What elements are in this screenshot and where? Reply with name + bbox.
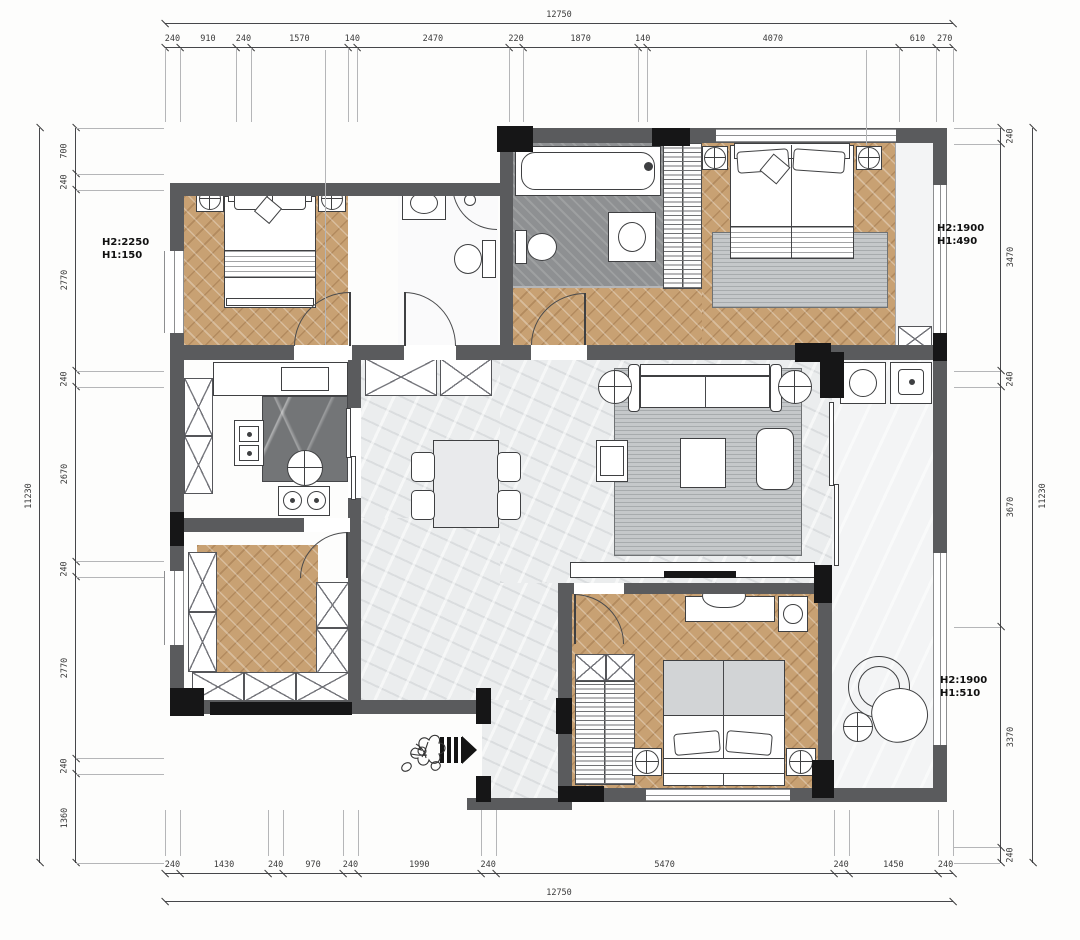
dim-chain-left-ext <box>76 774 164 775</box>
opening-bath1 <box>404 345 456 360</box>
window-label-right-bottom: H2:1900 H1:510 <box>940 674 1000 700</box>
wall-storage-right <box>348 530 361 714</box>
dim-overall-top: 12750 <box>165 6 953 24</box>
dim-overall-right-line <box>1032 128 1033 863</box>
dim-chain-left-ext <box>76 371 164 372</box>
window-label-right-top: H2:1900 H1:490 <box>937 222 997 248</box>
laundry-drain-dot <box>909 379 915 385</box>
pier-top-mid <box>652 128 690 146</box>
window-label-left-line2: H1:150 <box>102 249 162 262</box>
dim-chain-bottom-label: 240 <box>330 860 370 872</box>
pier-bed3-sw <box>558 786 604 802</box>
window-label-right-top-line1: H2:1900 <box>937 222 997 235</box>
dim-chain-bottom-ext <box>180 810 181 856</box>
dim-chain-bottom-label: 5470 <box>645 860 685 872</box>
sofa-seat-split <box>705 376 706 408</box>
bath2-toilet-tank <box>515 230 527 264</box>
window-label-right-bottom-line2: H1:510 <box>940 687 1000 700</box>
storage-cabinet-bottom-c <box>296 672 349 702</box>
dim-overall-right-label: 11230 <box>1035 128 1051 863</box>
dim-chain-bottom-label: 240 <box>821 860 861 872</box>
dim-chain-right-label: 240 <box>1003 847 1019 863</box>
storage-cabinet-bottom-b <box>244 672 296 702</box>
dim-chain-top-label: 2470 <box>413 34 453 46</box>
floor-plan-canvas: H2:2250 H1:150 H2:1900 H1:490 H2:1900 H1… <box>0 0 1080 940</box>
sideboard-b <box>440 358 492 396</box>
kitchen-tray <box>281 367 329 391</box>
bath1-toilet-bowl <box>454 244 482 274</box>
kitchen-sliding-door-b <box>351 456 356 500</box>
storage-cabinet-left-a <box>188 552 217 612</box>
window-label-right-top-line2: H1:490 <box>937 235 997 248</box>
master-pillow-b <box>792 148 845 174</box>
dining-chair-a <box>411 452 435 482</box>
bed3-pillow-b <box>725 730 773 756</box>
balcony-sliding-door-b <box>834 484 839 566</box>
dim-chain-top-ext <box>180 48 181 122</box>
dim-chain-bottom-label: 1990 <box>399 860 439 872</box>
dim-chain-right-ext <box>954 627 1000 628</box>
dim-chain-top-label: 910 <box>188 34 228 46</box>
window-storage-left <box>164 571 184 645</box>
living-plant-right <box>778 370 812 404</box>
bed1-blanket <box>224 250 316 278</box>
dim-overall-bottom: 12750 <box>165 884 953 902</box>
master-bed-centerline <box>791 145 792 259</box>
window-bed3-south <box>646 789 790 801</box>
tv-screen <box>664 571 736 578</box>
wall-wing-top <box>170 183 504 196</box>
bed3-lamp-a <box>635 750 659 774</box>
dim-chain-right-label: 3370 <box>1003 627 1019 848</box>
dim-chain-top-label: 240 <box>152 34 192 46</box>
dim-chain-top-label: 240 <box>223 34 263 46</box>
storage-cabinet-right-b <box>316 628 349 674</box>
bath2-tub-faucet <box>644 162 653 171</box>
door-bed1-leaf <box>349 292 351 346</box>
bath2-basin <box>618 222 646 252</box>
dim-chain-left-ext <box>76 387 164 388</box>
door-bath1-leaf <box>404 292 406 346</box>
window-master-top <box>716 129 896 142</box>
wall-kitchen-right-a <box>348 360 361 408</box>
dim-chain-right-ext <box>954 128 1000 129</box>
dim-chain-bottom-label: 240 <box>468 860 508 872</box>
dim-chain-left-label: 2670 <box>57 387 73 562</box>
dining-chair-b <box>411 490 435 520</box>
entry-arrow-tip <box>462 736 477 764</box>
hob-dot-b <box>247 451 252 456</box>
bath2-toilet-bowl <box>527 233 557 261</box>
opening-bed1 <box>294 345 352 360</box>
dim-overall-left-label: 11230 <box>21 128 37 863</box>
dim-chain-left-ext <box>76 758 164 759</box>
window-label-right-bottom-line1: H2:1900 <box>940 674 1000 687</box>
dim-chain-bottom-ext <box>953 810 954 856</box>
dim-chain-right-ext <box>954 371 1000 372</box>
hob-dot-a <box>247 432 252 437</box>
window-bedroom1-left <box>164 251 184 333</box>
dim-overall-right: 11230 <box>1032 128 1050 863</box>
dim-chain-left-ext <box>76 561 164 562</box>
dim-chain-bottom-ext <box>938 810 939 856</box>
master-blanket <box>730 226 854 259</box>
bed1-footboard <box>226 298 314 306</box>
dim-chain-top-label: 1870 <box>561 34 601 46</box>
dim-chain-left-label: 240 <box>57 758 73 774</box>
stove-dot-a <box>290 498 295 503</box>
pier-right-mid <box>933 333 947 361</box>
dim-overall-left: 11230 <box>22 128 40 863</box>
storage-cabinet-left-b <box>188 612 217 672</box>
pier-bed3-ne <box>814 565 832 603</box>
dim-chain-top-ext <box>638 48 639 122</box>
dim-chain-bottom-ext <box>268 810 269 856</box>
pier-bed3-se <box>812 760 834 798</box>
dim-chain-left-label: 2770 <box>57 190 73 371</box>
bed3-side-unit-basin <box>783 604 803 624</box>
dim-chain-right-label: 3470 <box>1003 144 1019 371</box>
dim-chain-bottom-label: 240 <box>926 860 966 872</box>
kitchen-sink <box>287 450 323 486</box>
bed3-cabinet-b <box>606 654 635 681</box>
dim-chain-right-label: 3670 <box>1003 387 1019 627</box>
dim-chain-right-ext <box>954 847 1000 848</box>
dim-chain-bottom-ext <box>283 810 284 856</box>
opening-storage <box>304 518 350 532</box>
kitchen-tall-cabinet-a <box>184 378 213 436</box>
kitchen-tall-cabinet-b <box>184 436 213 494</box>
dim-chain-top-ext <box>953 48 954 122</box>
dim-chain-left-ext <box>76 128 164 129</box>
dim-chain-left-label: 240 <box>57 371 73 387</box>
dim-chain-bottom-ext <box>481 810 482 856</box>
dim-chain-top-ext <box>936 48 937 122</box>
dim-chain-top-ext <box>357 48 358 122</box>
dim-chain-bottom-ext <box>343 810 344 856</box>
bed3-wardrobe <box>575 681 635 785</box>
armchair-left-seat <box>600 446 624 476</box>
dim-chain-left-label: 240 <box>57 174 73 190</box>
dim-overall-left-line <box>39 128 40 863</box>
dining-chair-c <box>497 452 521 482</box>
dim-chain-top-line <box>165 47 953 48</box>
dim-chain-top-ext <box>647 48 648 122</box>
dim-chain-bottom-ext <box>496 810 497 856</box>
master-lamp-b <box>858 147 880 169</box>
door-storage-leaf <box>346 532 348 578</box>
window-label-left: H2:2250 H1:150 <box>102 236 162 262</box>
dim-chain-right: 240347024036703370240 <box>1000 128 1018 863</box>
window-label-left-line1: H2:2250 <box>102 236 162 249</box>
window-master-right <box>933 185 947 333</box>
master-bay <box>895 143 933 345</box>
dim-chain-right-ext <box>954 387 1000 388</box>
dim-chain-top-ext <box>236 48 237 122</box>
opening-suite <box>531 345 587 360</box>
dim-chain-left-label: 1360 <box>57 774 73 863</box>
bath1-toilet-tank <box>482 240 496 278</box>
door-bed3-leaf <box>574 594 576 644</box>
pier-balcony-top <box>820 352 844 398</box>
centerline-master <box>866 50 867 145</box>
dim-chain-top: 2409102401570140247022018701404070610270 <box>165 30 953 48</box>
stove-dot-b <box>314 498 319 503</box>
dim-chain-bottom-label: 240 <box>256 860 296 872</box>
washer-drum <box>849 369 877 397</box>
dim-chain-bottom-ext <box>165 810 166 856</box>
opening-bed3 <box>574 583 624 594</box>
dim-chain-top-ext <box>251 48 252 122</box>
dim-chain-left-label: 2770 <box>57 577 73 758</box>
pier-bed3-w <box>556 698 572 734</box>
dim-chain-right-ext <box>954 863 1000 864</box>
balcony-sliding-door-a <box>829 402 834 486</box>
pier-storage-corner <box>170 688 204 716</box>
entry-plant-icon <box>396 724 446 776</box>
lounge-chair-right <box>756 428 794 490</box>
dim-chain-top-label: 4070 <box>753 34 793 46</box>
bed3-lamp-b <box>789 750 813 774</box>
master-wardrobe <box>663 143 702 289</box>
pier-bath-top <box>497 126 533 152</box>
dim-chain-bottom-label: 240 <box>152 860 192 872</box>
dim-chain-top-ext <box>899 48 900 122</box>
wall-bed3-left <box>558 583 572 798</box>
door-storage-arc <box>300 532 348 578</box>
dim-chain-left-ext <box>76 174 164 175</box>
dim-chain-top-label: 1570 <box>279 34 319 46</box>
balcony-plant <box>843 712 873 742</box>
bed3-cabinet-a <box>575 654 606 681</box>
dim-chain-right-line <box>1000 128 1001 863</box>
dim-chain-bottom: 2401430240970240199024054702401450240 <box>165 856 953 874</box>
bed3-throw <box>663 660 785 716</box>
bed3-headboard <box>663 758 785 774</box>
dim-chain-bottom-label: 970 <box>293 860 333 872</box>
bath2-floorline <box>513 286 663 288</box>
bed3-pillow-a <box>673 730 721 756</box>
dim-chain-left-line <box>75 128 76 863</box>
master-lamp-a <box>704 147 726 169</box>
dim-chain-left-ext <box>76 190 164 191</box>
dim-chain-bottom-ext <box>849 810 850 856</box>
pier-entry-b <box>476 776 491 802</box>
living-plant-left <box>598 370 632 404</box>
dim-overall-bottom-line <box>165 901 953 902</box>
dim-chain-top-ext <box>348 48 349 122</box>
pier-storage-south <box>210 702 352 715</box>
dim-chain-top-label: 220 <box>496 34 536 46</box>
dining-chair-d <box>497 490 521 520</box>
sofa-back <box>640 364 770 376</box>
dim-chain-top-ext <box>509 48 510 122</box>
dim-chain-left-ext <box>76 863 164 864</box>
pier-entry-a <box>476 688 491 724</box>
dim-overall-bottom-label: 12750 <box>539 888 579 900</box>
dim-chain-top-ext <box>523 48 524 122</box>
tile-entry <box>482 700 558 798</box>
window-study-right <box>933 553 947 745</box>
dim-chain-bottom-label: 1450 <box>873 860 913 872</box>
coffee-table <box>680 438 726 488</box>
dining-table <box>433 440 499 528</box>
wall-bath2-west <box>500 143 513 345</box>
storage-cabinet-right-a <box>316 582 349 628</box>
kitchen-sliding-door-a <box>346 408 351 458</box>
dim-chain-left-label: 240 <box>57 561 73 577</box>
dim-chain-bottom-ext <box>358 810 359 856</box>
dim-chain-left: 7002402770240267024027702401360 <box>58 128 76 863</box>
pier-left-mid <box>170 512 184 546</box>
sideboard-a <box>365 358 437 396</box>
dim-chain-left-ext <box>76 577 164 578</box>
dim-chain-left-label: 700 <box>57 128 73 174</box>
wall-corridor-bottom <box>361 700 482 714</box>
dim-chain-right-ext <box>954 144 1000 145</box>
dim-chain-bottom-ext <box>834 810 835 856</box>
door-suite-leaf <box>584 293 586 345</box>
centerline-bed1 <box>325 50 326 345</box>
bath2-bathtub-inner <box>521 152 655 190</box>
dim-overall-top-label: 12750 <box>539 10 579 22</box>
dim-overall-top-line <box>165 23 953 24</box>
dim-chain-top-ext <box>165 48 166 122</box>
dim-chain-bottom-label: 1430 <box>204 860 244 872</box>
